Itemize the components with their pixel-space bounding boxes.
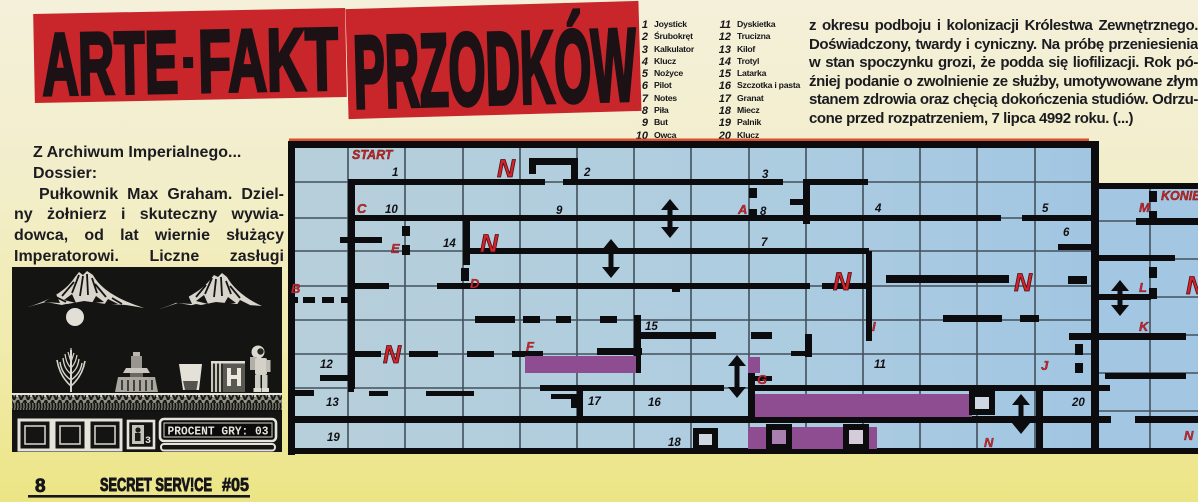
svg-text:17: 17 <box>588 396 601 408</box>
svg-text:N: N <box>984 435 994 450</box>
svg-text:10: 10 <box>385 204 398 216</box>
svg-text:C: C <box>357 201 367 216</box>
svg-text:K: K <box>1139 319 1150 334</box>
svg-text:F: F <box>526 339 535 354</box>
svg-text:1: 1 <box>392 167 398 179</box>
svg-text:G: G <box>757 372 767 387</box>
svg-text:12: 12 <box>320 359 333 371</box>
svg-text:KONIEC: KONIEC <box>1161 189 1198 203</box>
svg-text:5: 5 <box>1042 203 1049 215</box>
svg-text:6: 6 <box>1063 227 1070 239</box>
svg-text:N: N <box>480 230 499 258</box>
svg-text:2: 2 <box>583 167 591 179</box>
svg-text:N: N <box>1184 428 1194 443</box>
svg-text:16: 16 <box>648 397 661 409</box>
svg-text:B: B <box>291 281 300 296</box>
svg-text:I: I <box>872 319 876 334</box>
svg-text:4: 4 <box>874 203 882 215</box>
svg-text:N: N <box>497 155 516 183</box>
svg-text:E: E <box>391 241 400 256</box>
svg-text:N: N <box>383 341 402 369</box>
svg-text:9: 9 <box>556 205 563 217</box>
svg-text:20: 20 <box>1071 397 1085 409</box>
svg-text:7: 7 <box>761 237 768 249</box>
svg-text:D: D <box>470 276 480 291</box>
svg-text:18: 18 <box>668 437 681 449</box>
svg-text:START: START <box>352 148 394 162</box>
svg-text:N: N <box>1014 269 1033 297</box>
svg-text:15: 15 <box>645 321 658 333</box>
svg-text:J: J <box>1041 358 1049 373</box>
svg-text:19: 19 <box>327 432 340 444</box>
svg-text:14: 14 <box>443 238 456 250</box>
svg-text:SECRET SERV!CE: SECRET SERV!CE <box>100 475 212 495</box>
svg-text:#05: #05 <box>222 475 249 495</box>
svg-text:N: N <box>1186 272 1198 300</box>
svg-text:N: N <box>833 268 852 296</box>
svg-text:8: 8 <box>35 476 46 497</box>
svg-text:11: 11 <box>874 359 886 371</box>
svg-text:8: 8 <box>760 206 767 218</box>
svg-text:A: A <box>737 202 747 217</box>
svg-text:M: M <box>1139 200 1151 215</box>
svg-text:L: L <box>1139 280 1147 295</box>
svg-text:13: 13 <box>326 397 339 409</box>
svg-text:3: 3 <box>762 169 769 181</box>
